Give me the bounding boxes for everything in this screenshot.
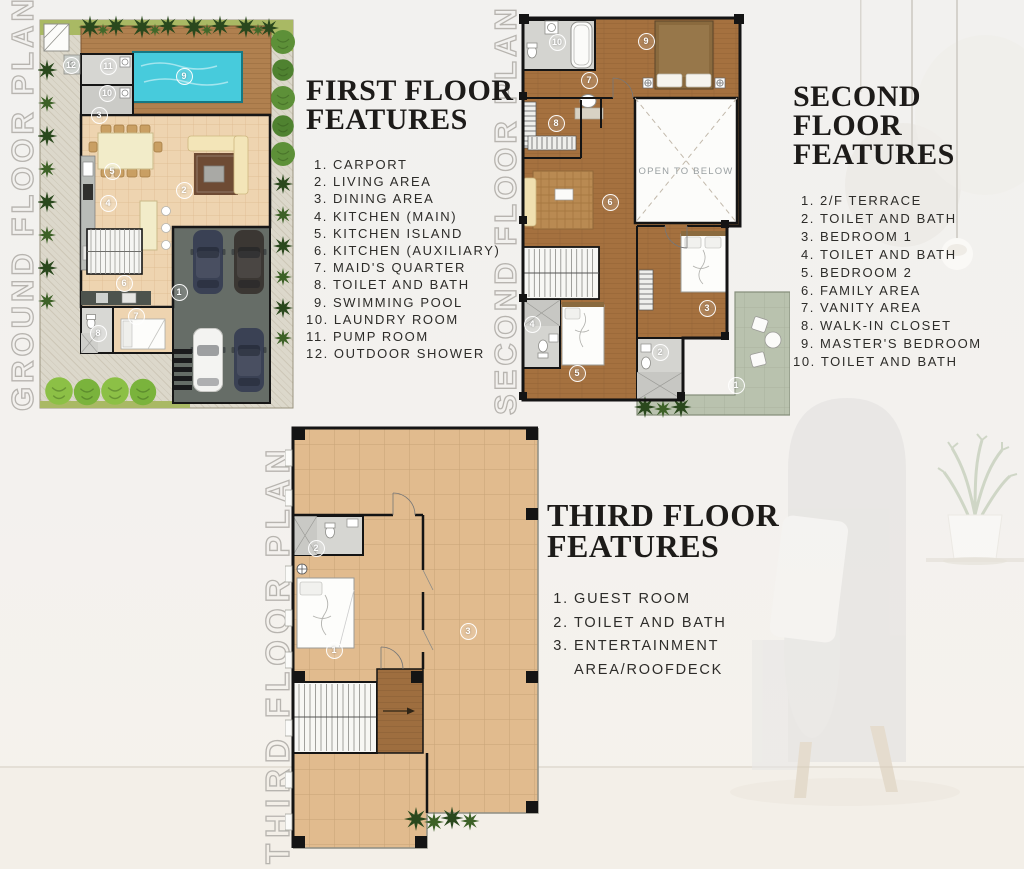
second-floor-features-list: 1.2/F TERRACE2.TOILET AND BATH3.BEDROOM … (793, 192, 1024, 371)
feature-item: 5.KITCHEN ISLAND (306, 225, 521, 242)
room-marker-5: 5 (104, 163, 121, 180)
title-line: FEATURES (793, 138, 955, 171)
room-marker-1: 1 (728, 377, 745, 394)
room-marker-3: 3 (91, 107, 108, 124)
room-marker-8: 8 (548, 115, 565, 132)
feature-item: 3.BEDROOM 1 (793, 228, 1024, 246)
feature-item: 1.GUEST ROOM (547, 588, 787, 612)
feature-item: 2.LIVING AREA (306, 173, 521, 190)
open-to-below-label: OPEN TO BELOW (639, 166, 734, 177)
feature-item: 9.SWIMMING POOL (306, 294, 521, 311)
lamp-cord (860, 0, 862, 92)
feature-item: 3.DINING AREA (306, 190, 521, 207)
third-floor-plan: 123 (285, 420, 545, 865)
first-floor-features-list: 1.CARPORT2.LIVING AREA3.DINING AREA4.KIT… (306, 156, 521, 362)
room-marker-9: 9 (176, 68, 193, 85)
washer (545, 21, 558, 34)
toilet (642, 357, 651, 369)
dining-table (98, 133, 153, 169)
room-marker-8: 8 (90, 325, 107, 342)
car (232, 328, 267, 392)
second-floor-features-title: SECOND FLOORFEATURES (793, 82, 1024, 169)
feature-item: 11.PUMP ROOM (306, 328, 521, 345)
room-marker-5: 5 (569, 365, 586, 382)
feature-item: 8.WALK-IN CLOSET (793, 317, 1024, 335)
coffee-table (204, 166, 224, 182)
room-marker-4: 4 (524, 316, 541, 333)
potted-plant (938, 434, 1017, 565)
ground-floor-plan: 123456789101112 (38, 8, 295, 412)
car (191, 230, 226, 294)
feature-item: 6.FAMILY AREA (793, 282, 1024, 300)
toilet (539, 340, 548, 352)
island-stools (162, 207, 171, 250)
ground-floor-plan-label: GROUND FLOOR PLAN (5, 0, 41, 411)
third-floor-features-list: 1.GUEST ROOM2.TOILET AND BATH3.ENTERTAIN… (547, 588, 787, 682)
room-marker-1: 1 (171, 284, 188, 301)
room-marker-9: 9 (638, 33, 655, 50)
second-floor-plan-drawing: OPEN TO BELOW (505, 8, 790, 418)
feature-item: 7.MAID'S QUARTER (306, 259, 521, 276)
car (232, 230, 267, 294)
room-marker-4: 4 (100, 195, 117, 212)
feature-item: 7.VANITY AREA (793, 299, 1024, 317)
feature-item: 10.LAUNDRY ROOM (306, 311, 521, 328)
room-marker-2: 2 (176, 182, 193, 199)
room-marker-10: 10 (549, 34, 566, 51)
room-marker-3: 3 (460, 623, 477, 640)
third-floor-features-title: THIRD FLOORFEATURES (547, 500, 787, 562)
title-line: FEATURES (547, 528, 719, 564)
room-marker-1: 1 (326, 642, 343, 659)
feature-item: 8.TOILET AND BATH (306, 276, 521, 293)
car (191, 328, 226, 392)
second-floor-features: SECOND FLOORFEATURES 1.2/F TERRACE2.TOIL… (793, 82, 1024, 371)
feature-item: 3.ENTERTAINMENT AREA/ROOFDECK (547, 635, 787, 682)
room-marker-12: 12 (63, 57, 80, 74)
feature-item: 1.CARPORT (306, 156, 521, 173)
room-marker-11: 11 (100, 58, 117, 75)
room-marker-7: 7 (581, 72, 598, 89)
feature-item: 6.KITCHEN (AUXILIARY) (306, 242, 521, 259)
feature-item: 12.OUTDOOR SHOWER (306, 345, 521, 362)
feature-item: 2.TOILET AND BATH (793, 210, 1024, 228)
title-line: SECOND FLOOR (793, 80, 921, 142)
first-floor-features-title: FIRST FLOORFEATURES (306, 76, 521, 134)
floor-plan-poster: GROUND FLOOR PLAN SECOND FLOOR PLAN THIR… (0, 0, 1024, 869)
feature-item: 10.TOILET AND BATH (793, 353, 1024, 371)
room-marker-6: 6 (602, 194, 619, 211)
feature-item: 9.MASTER'S BEDROOM (793, 335, 1024, 353)
room-marker-2: 2 (308, 540, 325, 557)
room-marker-7: 7 (128, 308, 145, 325)
room-marker-10: 10 (99, 85, 116, 102)
second-floor-plan: OPEN TO BELOW (505, 8, 790, 418)
feature-item: 4.KITCHEN (MAIN) (306, 208, 521, 225)
wall-ledges (285, 450, 292, 830)
first-floor-features: FIRST FLOORFEATURES 1.CARPORT2.LIVING AR… (306, 76, 521, 362)
room-marker-6: 6 (116, 275, 133, 292)
feature-item: 5.BEDROOM 2 (793, 264, 1024, 282)
room-marker-3: 3 (699, 300, 716, 317)
title-line: FEATURES (306, 103, 468, 136)
aux-kitchen-counter (81, 291, 151, 305)
vanity-sink (580, 95, 596, 108)
feature-item: 4.TOILET AND BATH (793, 246, 1024, 264)
room-marker-2: 2 (652, 344, 669, 361)
feature-item: 2.TOILET AND BATH (547, 612, 787, 636)
feature-item: 1.2/F TERRACE (793, 192, 1024, 210)
third-floor-plan-drawing (285, 420, 545, 865)
third-floor-features: THIRD FLOORFEATURES 1.GUEST ROOM2.TOILET… (547, 500, 787, 682)
